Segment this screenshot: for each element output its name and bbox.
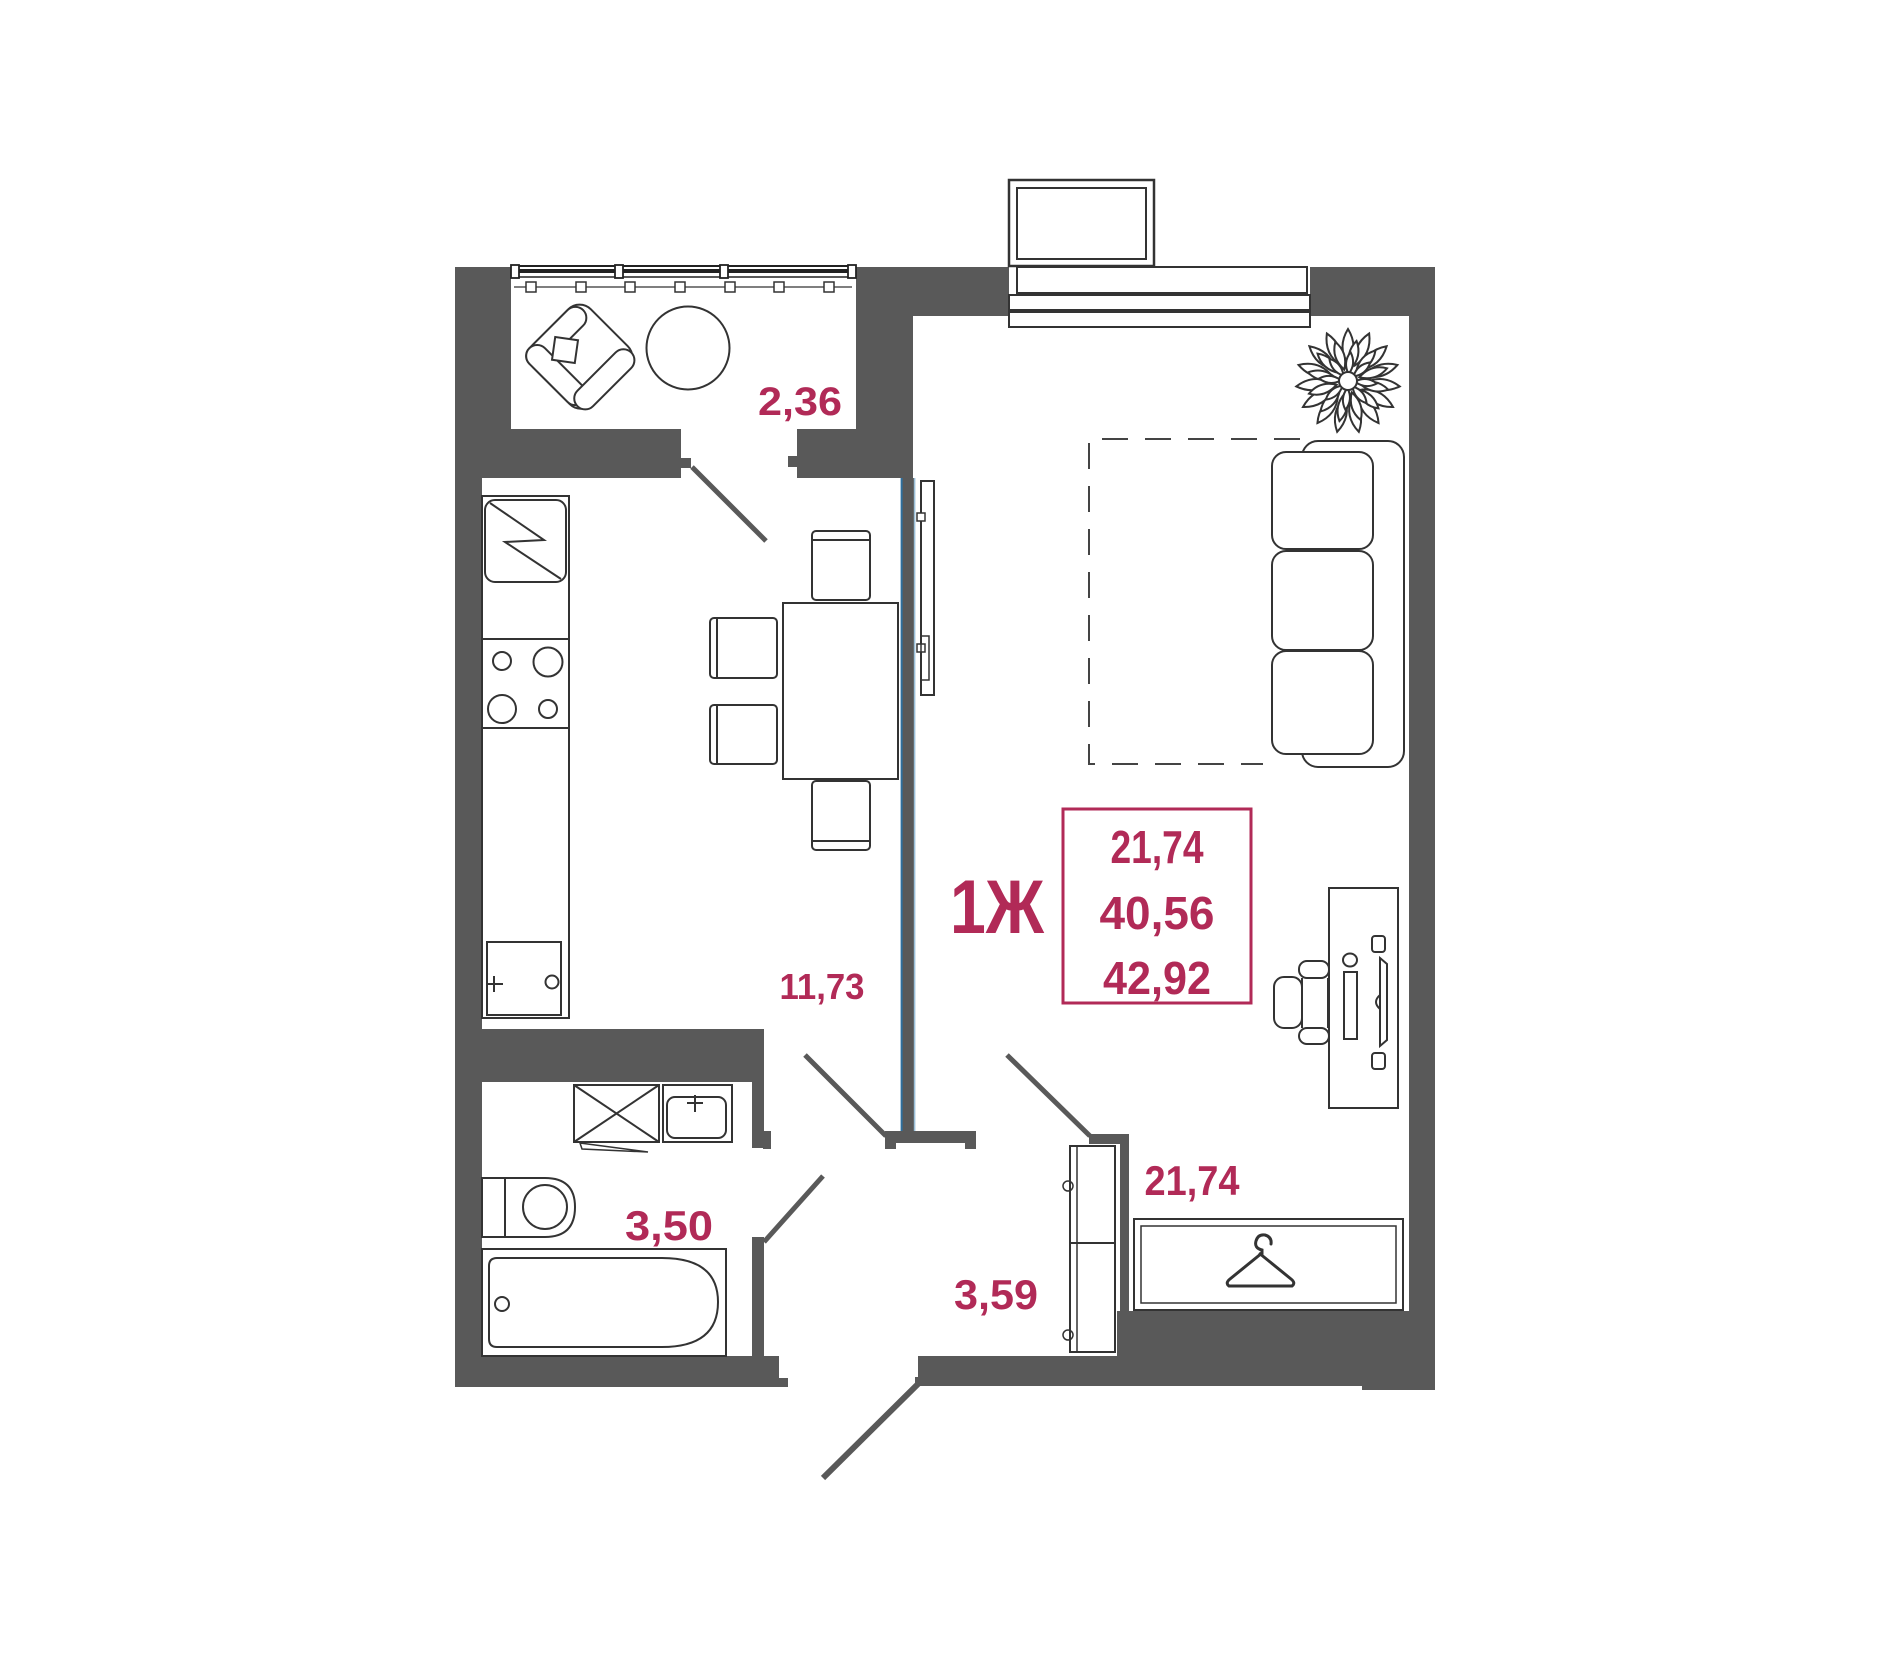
- svg-text:3,50: 3,50: [625, 1202, 713, 1249]
- svg-text:40,56: 40,56: [1100, 887, 1215, 939]
- svg-text:11,73: 11,73: [780, 966, 865, 1007]
- svg-text:3,59: 3,59: [954, 1271, 1038, 1318]
- svg-text:42,92: 42,92: [1103, 952, 1211, 1004]
- svg-text:21,74: 21,74: [1111, 821, 1204, 873]
- svg-text:1Ж: 1Ж: [950, 865, 1045, 950]
- svg-text:21,74: 21,74: [1145, 1157, 1241, 1204]
- svg-text:2,36: 2,36: [758, 380, 842, 424]
